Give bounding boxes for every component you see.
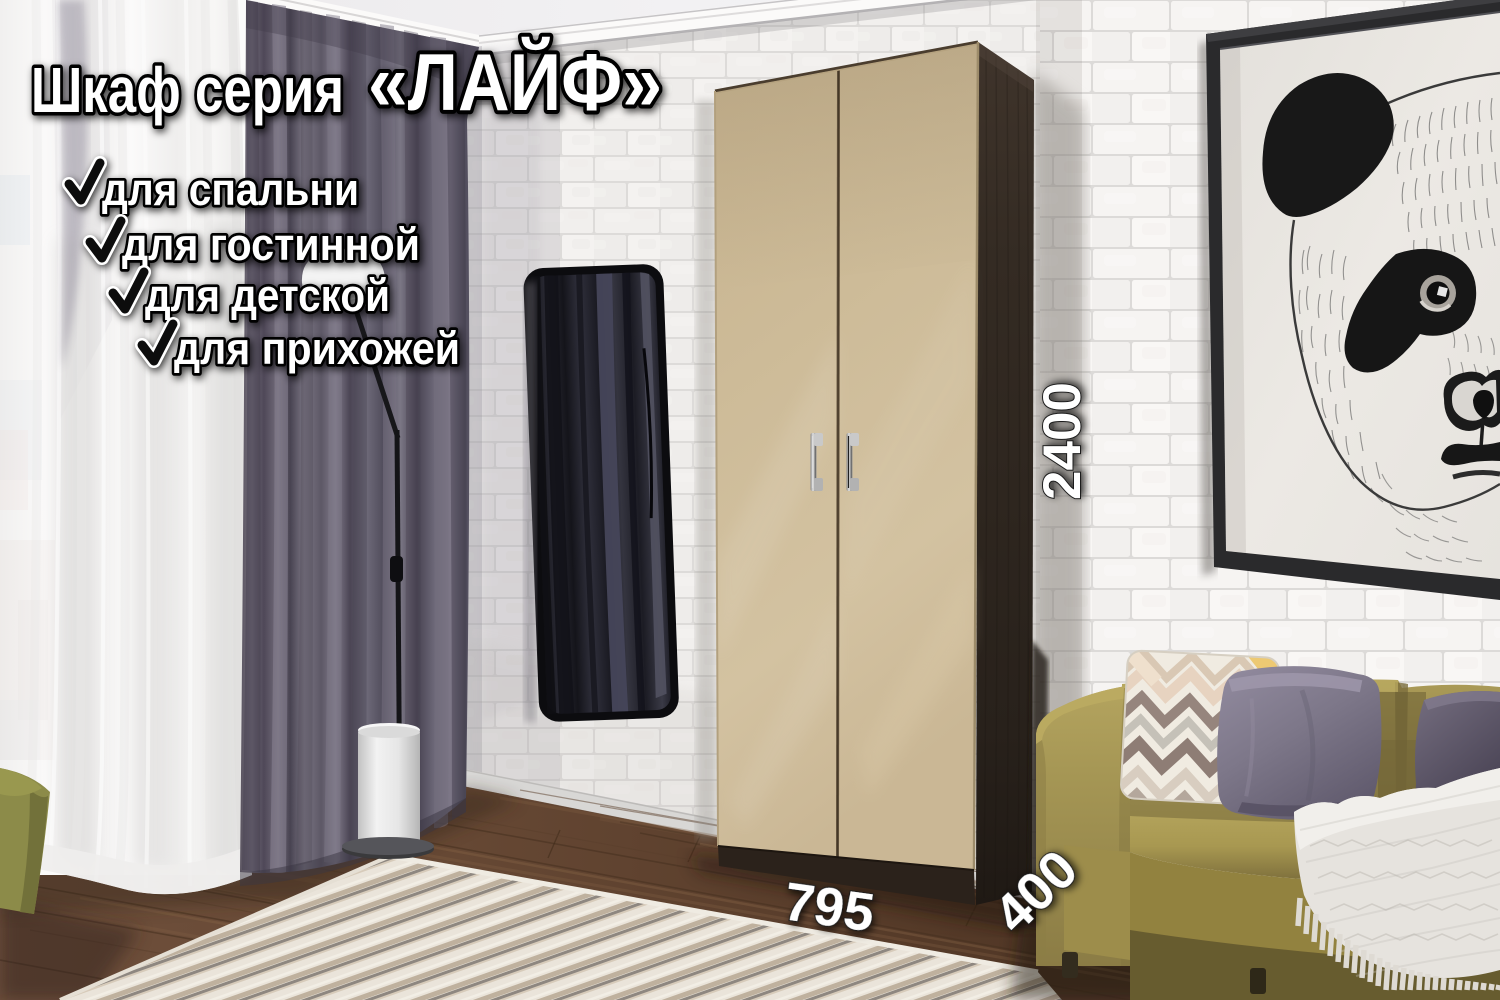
svg-text:«ЛАЙФ»: «ЛАЙФ» [368, 36, 662, 128]
svg-text:для спальни: для спальни [102, 164, 359, 215]
svg-text:2400: 2400 [1033, 382, 1092, 500]
svg-text:для детской: для детской [145, 270, 390, 321]
svg-text:Шкаф серия: Шкаф серия [31, 54, 344, 126]
svg-text:для гостинной: для гостинной [122, 219, 420, 270]
svg-text:для прихожей: для прихожей [174, 323, 460, 374]
svg-text:795: 795 [780, 871, 878, 943]
